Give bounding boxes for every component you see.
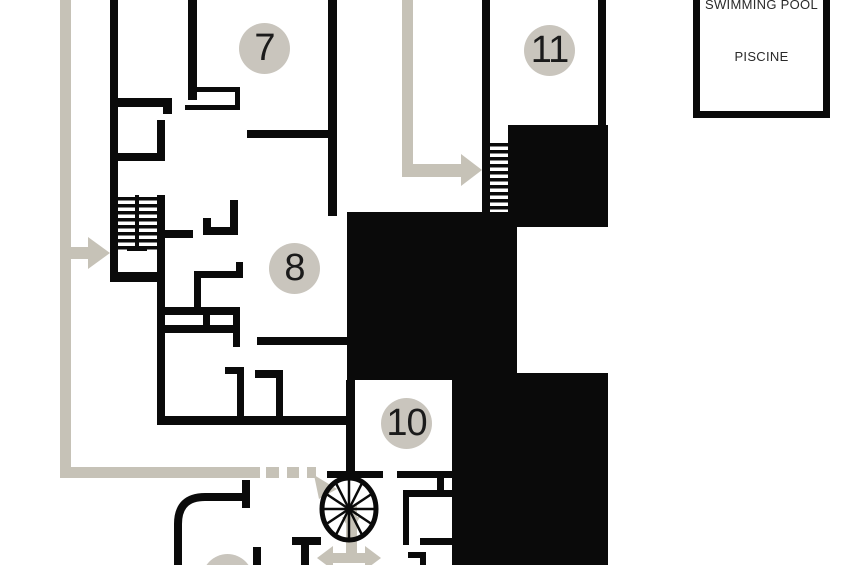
left-staircase bbox=[118, 195, 157, 251]
swimming-pool-box: SWIMMING POOL PISCINE bbox=[693, 0, 830, 118]
route-arrow-right-stairs bbox=[461, 154, 482, 186]
rounded-corner-wall bbox=[178, 497, 250, 565]
pool-label-en: SWIMMING POOL bbox=[700, 0, 823, 12]
floor-plan: 7 8 10 11 SWIMMING POOL PISCINE bbox=[0, 0, 848, 565]
room-badge-10: 10 bbox=[381, 398, 432, 449]
route-arrow-bottom-left bbox=[317, 546, 333, 565]
route-arrow-bottom-right bbox=[365, 546, 381, 565]
solid-core-lower-right bbox=[452, 373, 608, 565]
pool-label-fr: PISCINE bbox=[700, 49, 823, 64]
solid-core-upper-right bbox=[508, 125, 608, 227]
room-badge-11: 11 bbox=[524, 25, 575, 76]
room-badge-8: 8 bbox=[269, 243, 320, 294]
solid-core-center bbox=[347, 212, 517, 380]
room-badge-7: 7 bbox=[239, 23, 290, 74]
spiral-staircase bbox=[322, 478, 376, 540]
route-arrow-left-stairs bbox=[88, 237, 110, 269]
right-staircase bbox=[488, 143, 508, 210]
